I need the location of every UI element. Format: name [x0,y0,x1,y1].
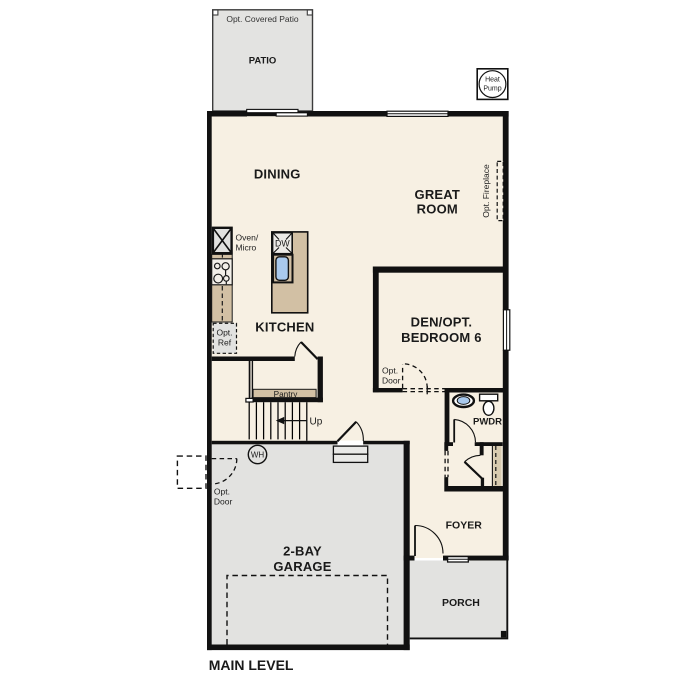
svg-text:2-BAY: 2-BAY [283,543,322,558]
svg-text:Heat: Heat [485,77,500,84]
svg-text:Ref: Ref [218,338,232,348]
svg-text:ROOM: ROOM [417,202,458,217]
svg-text:Up: Up [310,417,323,428]
svg-text:Pantry: Pantry [274,390,299,399]
svg-text:Micro: Micro [236,243,257,253]
svg-text:Opt.: Opt. [382,366,398,376]
svg-text:WH: WH [251,451,265,460]
svg-text:Opt.: Opt. [216,328,232,338]
svg-text:Door: Door [214,497,233,507]
svg-text:DW: DW [275,239,290,249]
svg-text:PATIO: PATIO [249,56,277,67]
svg-text:Pump: Pump [483,86,501,93]
svg-text:FOYER: FOYER [446,519,483,531]
svg-text:BEDROOM 6: BEDROOM 6 [401,330,482,345]
svg-text:DINING: DINING [254,167,301,182]
svg-text:Opt. Covered Patio: Opt. Covered Patio [226,14,299,24]
svg-text:MAIN LEVEL: MAIN LEVEL [209,657,294,673]
svg-text:PORCH: PORCH [442,597,480,609]
svg-text:KITCHEN: KITCHEN [255,320,314,335]
svg-text:PWDR: PWDR [473,417,502,428]
svg-text:GREAT: GREAT [415,187,461,202]
svg-text:Opt. Fireplace: Opt. Fireplace [481,164,491,218]
svg-text:GARAGE: GARAGE [273,559,331,574]
svg-text:Opt.: Opt. [214,487,230,497]
svg-text:DEN/OPT.: DEN/OPT. [411,314,473,329]
svg-text:Door: Door [382,376,401,386]
svg-text:Oven/: Oven/ [236,233,259,243]
